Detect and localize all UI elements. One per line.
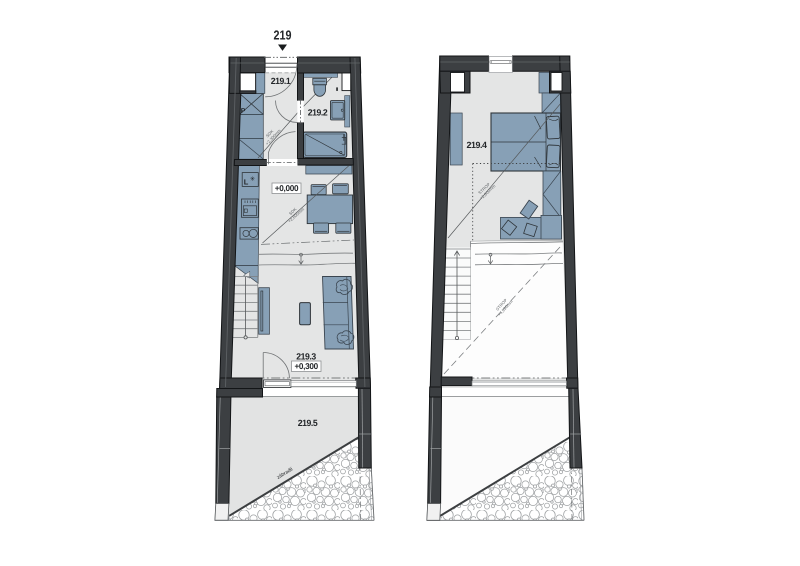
svg-text:219.1: 219.1: [271, 76, 291, 86]
svg-text:+0,300: +0,300: [294, 361, 318, 371]
svg-text:219.3: 219.3: [296, 351, 316, 361]
svg-text:✳: ✳: [250, 176, 256, 183]
svg-text:219.4: 219.4: [467, 140, 487, 150]
svg-text:P: P: [241, 108, 246, 115]
svg-text:219: 219: [274, 28, 292, 43]
svg-text:+0,000: +0,000: [275, 183, 299, 193]
svg-text:219.2: 219.2: [308, 108, 328, 118]
svg-text:L: L: [244, 178, 249, 187]
svg-text:219.5: 219.5: [298, 418, 318, 428]
